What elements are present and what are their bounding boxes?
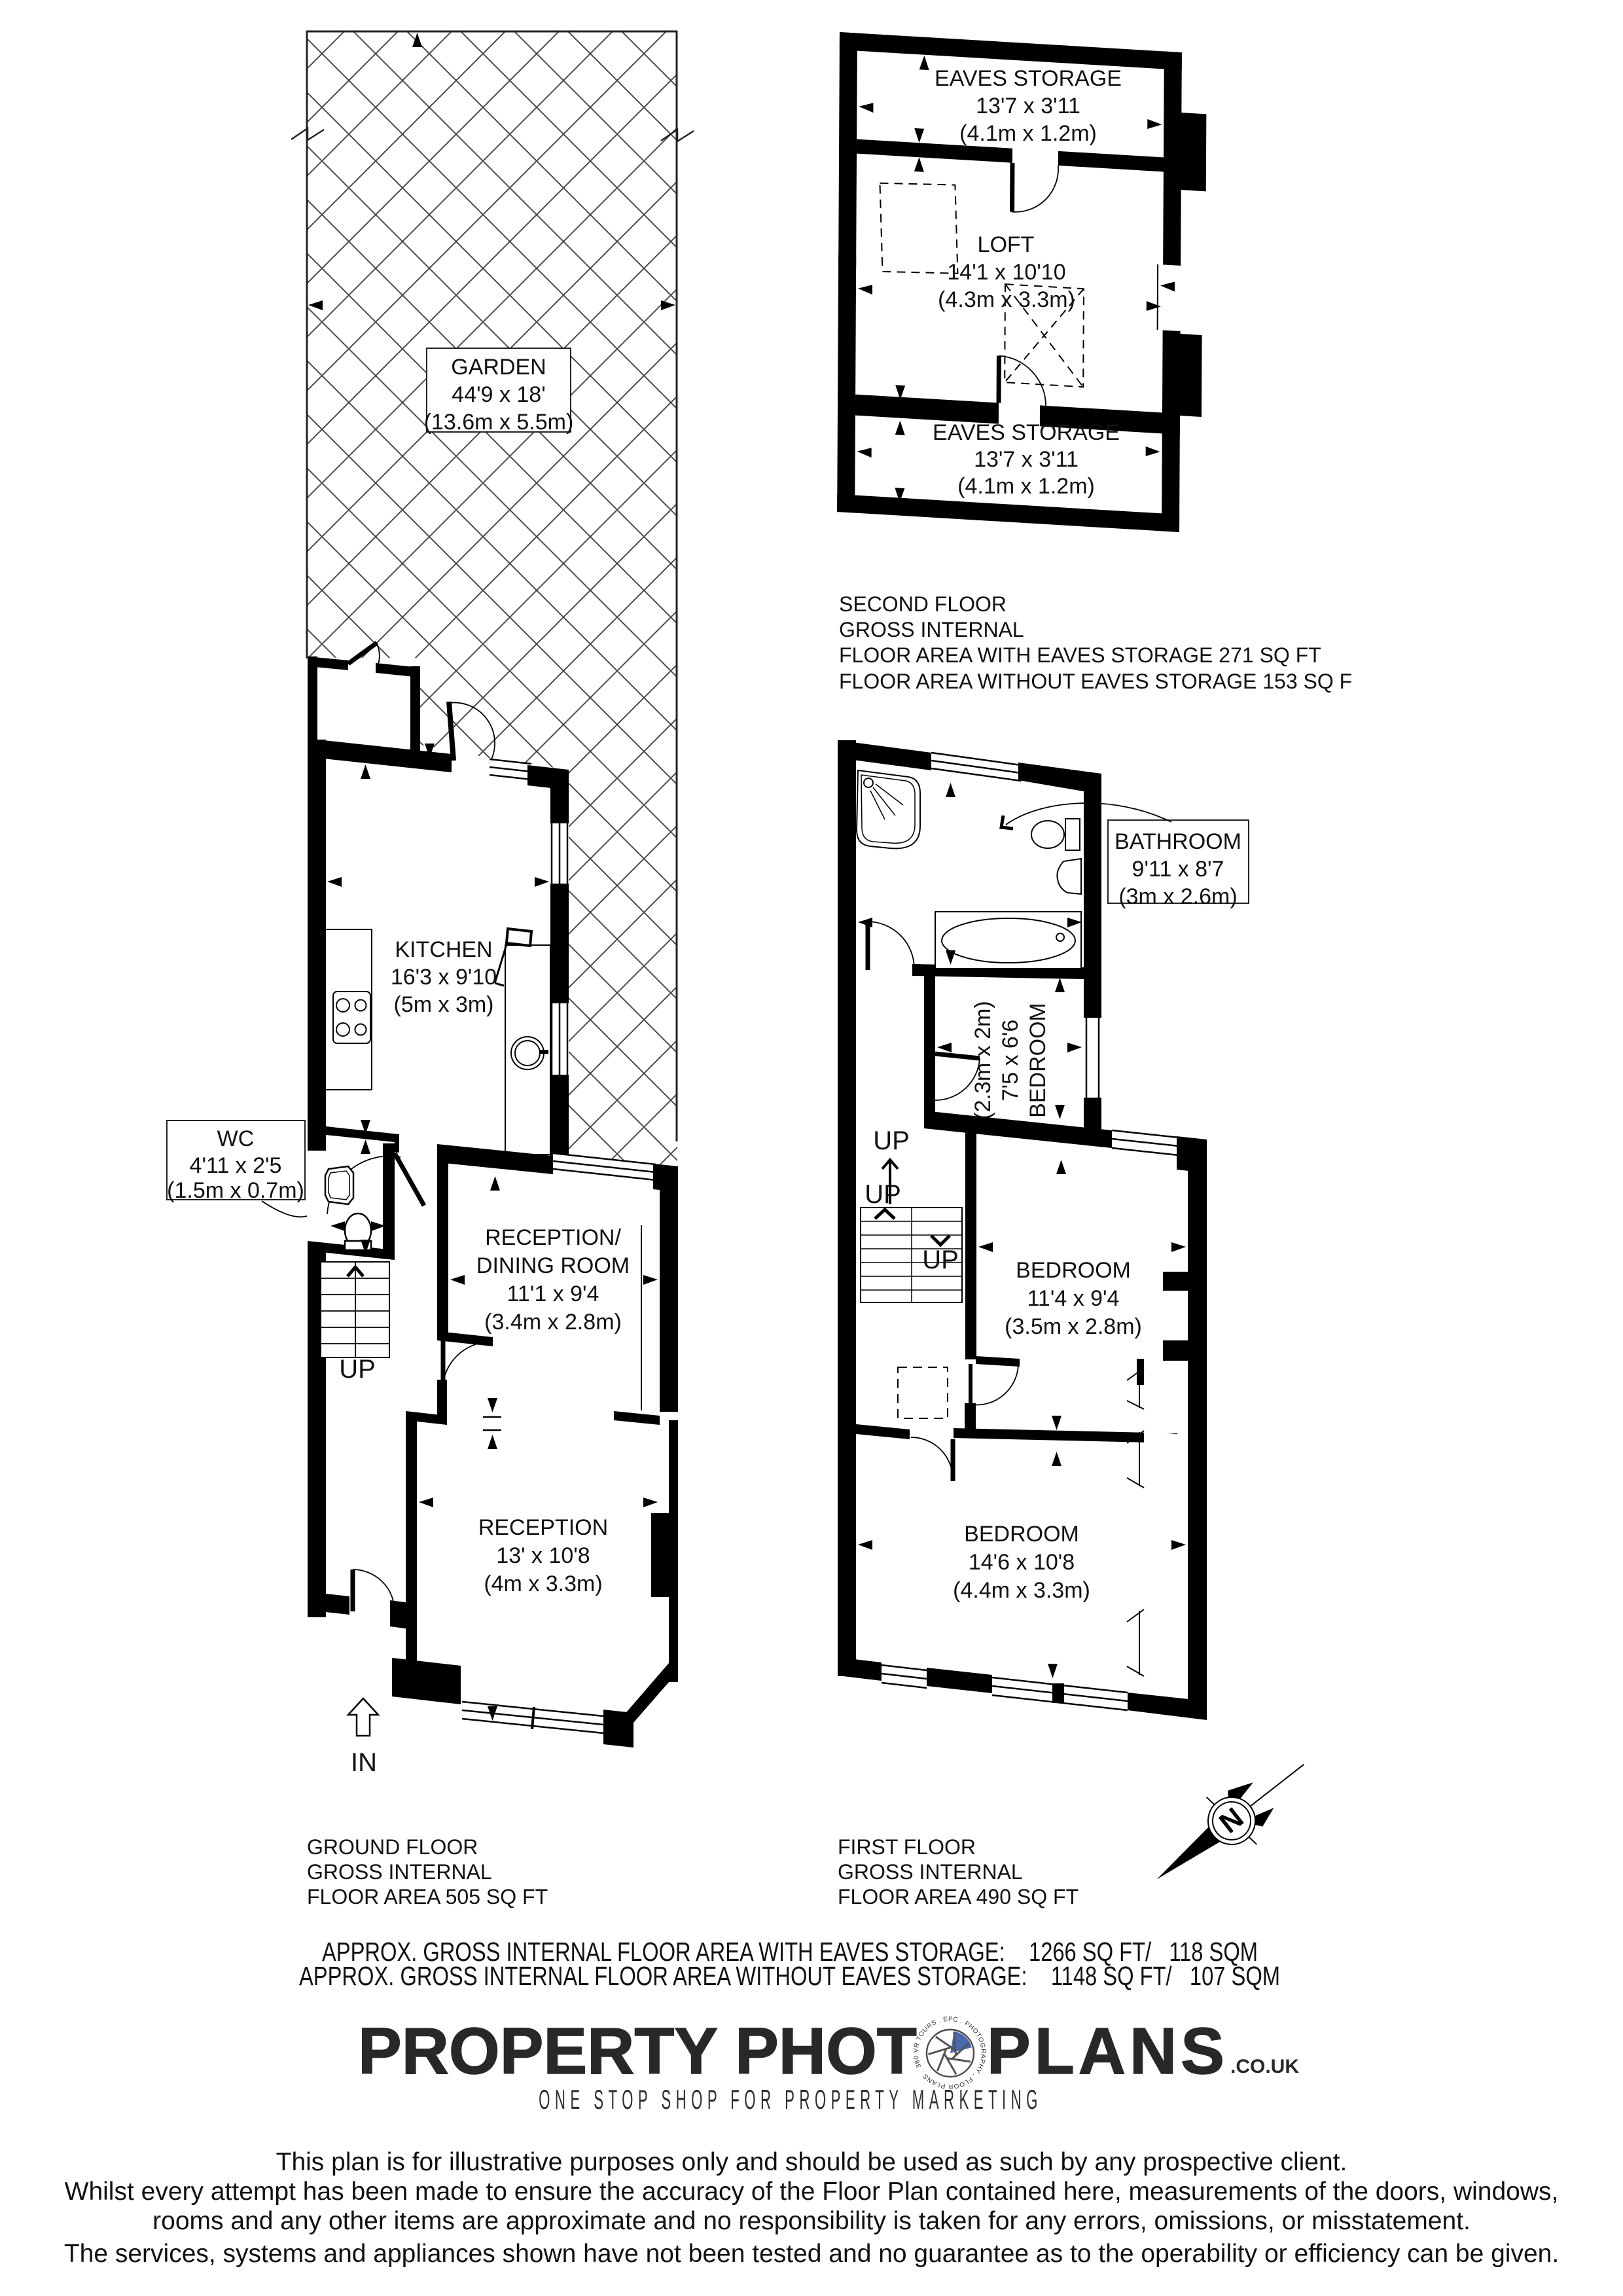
svg-text:GROUND FLOOR: GROUND FLOOR	[307, 1835, 478, 1859]
svg-text:GROSS INTERNAL: GROSS INTERNAL	[839, 618, 1024, 641]
svg-text:UP: UP	[339, 1355, 376, 1384]
svg-text:(5m x 3m): (5m x 3m)	[394, 992, 494, 1017]
svg-text:14'1 x 10'10: 14'1 x 10'10	[947, 260, 1065, 285]
svg-text:The services, systems and appl: The services, systems and appliances sho…	[64, 2240, 1559, 2268]
svg-text:FIRST FLOOR: FIRST FLOOR	[838, 1835, 976, 1859]
svg-text:BEDROOM: BEDROOM	[1016, 1258, 1131, 1283]
svg-text:13' x 10'8: 13' x 10'8	[496, 1543, 590, 1568]
svg-text:(4m x 3.3m): (4m x 3.3m)	[484, 1571, 602, 1596]
svg-text:13'7 x 3'11: 13'7 x 3'11	[976, 94, 1080, 118]
svg-text:LOFT: LOFT	[978, 232, 1035, 257]
svg-text:UP: UP	[873, 1126, 910, 1155]
svg-text:FLOOR AREA 505 SQ FT: FLOOR AREA 505 SQ FT	[307, 1885, 548, 1909]
svg-text:(4.3m x 3.3m): (4.3m x 3.3m)	[938, 287, 1075, 312]
svg-text:BEDROOM: BEDROOM	[964, 1522, 1079, 1547]
svg-text:14'6 x 10'8: 14'6 x 10'8	[969, 1550, 1075, 1575]
svg-text:(1.5m x 0.7m): (1.5m x 0.7m)	[167, 1178, 304, 1203]
svg-text:This plan is for illustrative: This plan is for illustrative purposes o…	[276, 2148, 1347, 2176]
svg-text:9'11 x 8'7: 9'11 x 8'7	[1132, 857, 1224, 882]
svg-text:EAVES STORAGE: EAVES STORAGE	[935, 66, 1122, 91]
svg-text:11'4 x 9'4: 11'4 x 9'4	[1027, 1286, 1120, 1311]
svg-text:(4.1m x 1.2m): (4.1m x 1.2m)	[959, 121, 1097, 146]
svg-text:7'5 x 6'6: 7'5 x 6'6	[998, 1020, 1023, 1102]
svg-text:FLOOR AREA WITH EAVES STORAGE: FLOOR AREA WITH EAVES STORAGE 271 SQ FT	[839, 643, 1321, 667]
svg-text:BEDROOM: BEDROOM	[1026, 1003, 1050, 1118]
svg-text:KITCHEN: KITCHEN	[395, 937, 492, 962]
svg-text:13'7 x 3'11: 13'7 x 3'11	[974, 447, 1079, 472]
svg-text:FLOOR AREA 490 SQ FT: FLOOR AREA 490 SQ FT	[838, 1885, 1079, 1909]
svg-text:RECEPTION: RECEPTION	[478, 1515, 608, 1540]
svg-text:(2.3m x 2m): (2.3m x 2m)	[971, 1001, 995, 1119]
svg-text:Whilst every attempt has been: Whilst every attempt has been made to en…	[65, 2178, 1559, 2206]
svg-text:PROPERTY PHOT: PROPERTY PHOT	[358, 2015, 917, 2088]
svg-text:rooms and any other items are: rooms and any other items are approximat…	[152, 2207, 1471, 2235]
svg-text:WC: WC	[217, 1126, 255, 1151]
svg-text:.CO.UK: .CO.UK	[1230, 2056, 1299, 2077]
svg-text:4'11 x 2'5: 4'11 x 2'5	[190, 1153, 282, 1178]
svg-text:(3.5m x 2.8m): (3.5m x 2.8m)	[1005, 1314, 1142, 1339]
svg-text:11'1 x 9'4: 11'1 x 9'4	[507, 1282, 599, 1306]
svg-text:SECOND FLOOR: SECOND FLOOR	[839, 592, 1007, 616]
svg-text:(13.6m x 5.5m): (13.6m x 5.5m)	[424, 410, 574, 435]
svg-text:(4.1m x 1.2m): (4.1m x 1.2m)	[957, 474, 1095, 499]
svg-text:GROSS INTERNAL: GROSS INTERNAL	[838, 1860, 1023, 1884]
svg-text:(4.4m x 3.3m): (4.4m x 3.3m)	[953, 1578, 1090, 1603]
svg-text:PLANS: PLANS	[987, 2015, 1228, 2088]
svg-text:(3m x 2.6m): (3m x 2.6m)	[1118, 884, 1237, 909]
svg-text:UP: UP	[922, 1246, 959, 1274]
svg-text:DINING ROOM: DINING ROOM	[476, 1253, 630, 1278]
svg-text:GROSS INTERNAL: GROSS INTERNAL	[307, 1860, 492, 1884]
svg-text:UP: UP	[865, 1180, 901, 1209]
svg-text:EAVES STORAGE: EAVES STORAGE	[933, 420, 1120, 445]
svg-text:APPROX. GROSS INTERNAL FLOOR A: APPROX. GROSS INTERNAL FLOOR AREA WITHOU…	[299, 1961, 1280, 1991]
svg-text:IN: IN	[351, 1748, 377, 1777]
svg-text:(3.4m x 2.8m): (3.4m x 2.8m)	[484, 1310, 622, 1335]
svg-text:ONE STOP SHOP FOR PROPERTY MAR: ONE STOP SHOP FOR PROPERTY MARKETING	[539, 2085, 1043, 2115]
svg-text:44'9 x 18': 44'9 x 18'	[452, 382, 545, 407]
svg-text:16'3 x 9'10: 16'3 x 9'10	[391, 965, 497, 990]
svg-text:BATHROOM: BATHROOM	[1115, 829, 1241, 854]
svg-text:FLOOR AREA WITHOUT EAVES STORA: FLOOR AREA WITHOUT EAVES STORAGE 153 SQ …	[839, 670, 1352, 693]
svg-text:GARDEN: GARDEN	[451, 355, 546, 380]
svg-text:RECEPTION/: RECEPTION/	[485, 1225, 621, 1250]
